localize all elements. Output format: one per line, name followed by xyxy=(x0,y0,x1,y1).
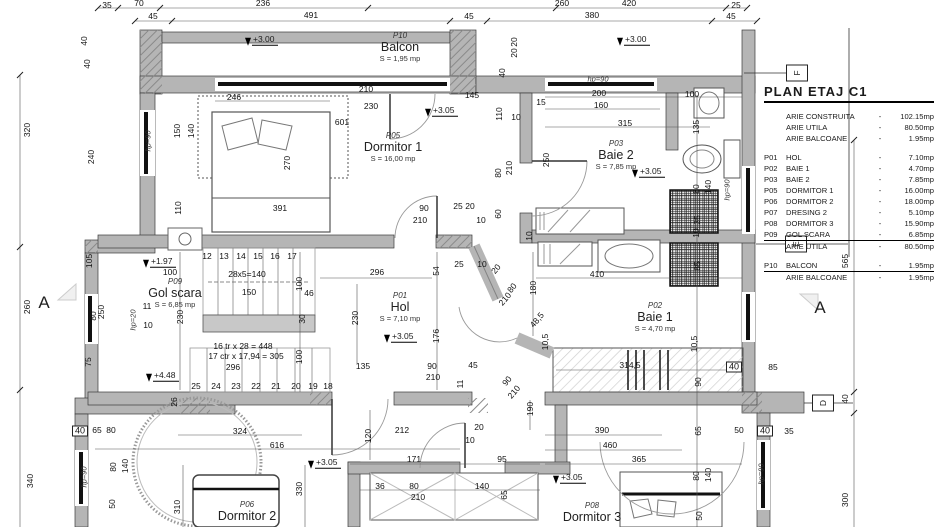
dim-label: 160 xyxy=(594,101,608,110)
legend-cell: BAIE 1 xyxy=(786,163,874,174)
legend-panel: PLAN ETAJ C1 ARIE CONSTRUITA-102.15mpARI… xyxy=(764,84,934,283)
floor-plan-canvas: 3570236260420254549145380453202603404040… xyxy=(0,0,938,527)
dim-label: 35 xyxy=(784,427,793,436)
dim-label: 30 xyxy=(298,314,307,323)
level-marker: +3.00 xyxy=(617,35,650,46)
dim-label: 25 xyxy=(191,382,200,391)
dim-label: 145 xyxy=(465,91,479,100)
dim-label: 35 xyxy=(693,215,702,224)
dim-label: 16 tr x 28 = 448 xyxy=(213,342,272,351)
dim-label: 65 xyxy=(500,490,509,499)
dim-label: 100 xyxy=(295,277,304,291)
room-name: Baie 1 xyxy=(635,310,676,324)
dim-label: 230 xyxy=(364,102,378,111)
dim-label: 210 xyxy=(426,373,440,382)
level-marker: +1.97 xyxy=(143,257,176,268)
dim-label: 314,5 xyxy=(619,361,640,370)
dim-label: hp=90 xyxy=(587,75,608,83)
legend-cell: - xyxy=(874,152,886,163)
room-code: P03 xyxy=(596,139,637,148)
dim-label: 601 xyxy=(335,118,349,127)
dim-label: 21 xyxy=(271,382,280,391)
dim-label: 18 xyxy=(323,382,332,391)
level-marker: +4.48 xyxy=(146,371,179,382)
legend-cell: P05 xyxy=(764,185,786,196)
dim-label: 11 xyxy=(456,380,465,389)
dim-label: 17 xyxy=(287,252,296,261)
dim-label: 16 xyxy=(270,252,279,261)
dim-label: 50 xyxy=(734,426,743,435)
legend-cell: - xyxy=(874,133,886,144)
legend-row: P02BAIE 1-4.70mp xyxy=(764,163,934,174)
dim-label: 410 xyxy=(590,270,604,279)
dim-label: 120 xyxy=(364,429,373,443)
dim-label: 20 xyxy=(465,202,474,211)
legend-cell: 5.10mp xyxy=(886,207,934,218)
dim-label: 20 xyxy=(510,48,519,57)
dim-label: 100 xyxy=(295,350,304,364)
level-marker: +3.00 xyxy=(245,35,278,46)
legend-cell: - xyxy=(874,196,886,207)
dim-label: 330 xyxy=(295,482,304,496)
legend-row: P05DORMITOR 1-16.00mp xyxy=(764,185,934,196)
dim-label: 491 xyxy=(304,11,318,20)
room-label-baie-2: P03Baie 2S = 7,85 mp xyxy=(596,139,637,171)
room-area: S = 16,00 mp xyxy=(364,154,422,163)
legend-cell: - xyxy=(874,229,886,240)
room-code: P09 xyxy=(148,277,202,286)
legend-cell: 80.50mp xyxy=(886,241,934,252)
legend-cell: BALCON xyxy=(786,260,874,271)
room-name: Hol xyxy=(380,300,421,314)
legend-cell: P01 xyxy=(764,152,786,163)
legend-cell: 7.85mp xyxy=(886,174,934,185)
dim-label: 390 xyxy=(595,426,609,435)
dim-label: 80 xyxy=(692,184,701,193)
dim-label: 25 xyxy=(453,202,462,211)
legend-cell: 1.95mp xyxy=(886,260,934,271)
legend-cell: P02 xyxy=(764,163,786,174)
legend-row: ARIE BALCOANE-1.95mp xyxy=(764,271,934,283)
dim-label: 20 xyxy=(291,382,300,391)
dim-label: 230 xyxy=(176,310,185,324)
dim-label: 210 xyxy=(359,85,373,94)
dim-label: 300 xyxy=(841,493,850,507)
dim-label: 140 xyxy=(121,459,130,473)
dim-label: 135 xyxy=(356,362,370,371)
level-triangle-icon xyxy=(425,108,431,116)
dim-label: 171 xyxy=(407,455,421,464)
dim-label: 210 xyxy=(413,216,427,225)
dim-label: 45 xyxy=(148,12,157,21)
dim-label: 240 xyxy=(87,150,96,164)
legend-cell: 16.00mp xyxy=(886,185,934,196)
dim-label: 80 xyxy=(494,168,503,177)
legend-row: P06DORMITOR 2-18.00mp xyxy=(764,196,934,207)
dim-label: 296 xyxy=(370,268,384,277)
room-code: P01 xyxy=(380,291,421,300)
level-triangle-icon xyxy=(308,460,314,468)
dim-label: 46 xyxy=(304,289,313,298)
dim-label: 90 xyxy=(427,362,436,371)
dim-label: hp=90 xyxy=(144,130,152,151)
dim-label: 391 xyxy=(273,204,287,213)
legend-row: P08DORMITOR 3-15.90mp xyxy=(764,218,934,229)
room-label-dormitor-2: P06Dormitor 2 xyxy=(218,500,276,524)
legend-cell: P08 xyxy=(764,218,786,229)
dim-label: hp=90 xyxy=(723,179,731,200)
legend-cell: GOL SCARA xyxy=(786,229,874,240)
dim-label: hp=90 xyxy=(80,466,88,487)
dim-label: 40 xyxy=(841,394,850,403)
legend-cell: - xyxy=(874,272,886,283)
legend-cell: 80.50mp xyxy=(886,122,934,133)
level-triangle-icon xyxy=(146,373,152,381)
room-name: Balcon xyxy=(380,40,421,54)
room-name: Dormitor 1 xyxy=(364,140,422,154)
legend-cell: ARIE UTILA xyxy=(786,241,874,252)
dim-label: 200 xyxy=(592,89,606,98)
section-marker-a: A xyxy=(38,293,49,313)
legend-cell: - xyxy=(874,122,886,133)
dim-label: 75 xyxy=(84,357,93,366)
dim-label: 140 xyxy=(704,180,713,194)
dim-label: 45 xyxy=(468,361,477,370)
legend-cell: DORMITOR 1 xyxy=(786,185,874,196)
dim-label: 110 xyxy=(495,107,504,121)
room-label-dormitor-1: P05Dormitor 1S = 16,00 mp xyxy=(364,131,422,163)
legend-cell: - xyxy=(874,174,886,185)
legend-cell: HOL xyxy=(786,152,874,163)
level-triangle-icon xyxy=(617,37,623,45)
level-marker: +3.05 xyxy=(384,332,417,343)
legend-rows: ARIE CONSTRUITA-102.15mpARIE UTILA-80.50… xyxy=(764,111,934,283)
dim-label: 54 xyxy=(432,266,441,275)
dim-label: 320 xyxy=(23,123,32,137)
room-area: S = 4,70 mp xyxy=(635,324,676,333)
dim-label: 24 xyxy=(211,382,220,391)
legend-cell: 15.90mp xyxy=(886,218,934,229)
room-label-baie-1: P02Baie 1S = 4,70 mp xyxy=(635,301,676,333)
dim-label: 14 xyxy=(236,252,245,261)
dim-label: 28x5=140 xyxy=(228,270,266,279)
legend-cell: - xyxy=(874,111,886,122)
dim-label: 10,5 xyxy=(690,336,699,353)
legend-cell: P07 xyxy=(764,207,786,218)
dim-label: 40 xyxy=(757,426,773,437)
legend-cell: ARIE CONSTRUITA xyxy=(786,111,874,122)
level-marker: +3.05 xyxy=(308,458,341,469)
legend-row: ARIE UTILA-80.50mp xyxy=(764,122,934,133)
legend-cell: - xyxy=(874,185,886,196)
dim-label: 22 xyxy=(251,382,260,391)
legend-cell: 102.15mp xyxy=(886,111,934,122)
room-area: S = 1,95 mp xyxy=(380,54,421,63)
dim-label: 380 xyxy=(585,11,599,20)
legend-cell: - xyxy=(874,207,886,218)
dim-label: 85 xyxy=(768,363,777,372)
room-name: Dormitor 2 xyxy=(218,509,276,523)
dim-label: 296 xyxy=(226,363,240,372)
legend-cell: 6.85mp xyxy=(886,229,934,240)
dim-label: 12 xyxy=(202,252,211,261)
dim-label: 20 xyxy=(474,423,483,432)
room-label-dormitor-3: P08Dormitor 3 xyxy=(563,501,621,525)
room-area: S = 6,85 mp xyxy=(148,300,202,309)
dim-label: 40 xyxy=(72,426,88,437)
legend-cell: - xyxy=(874,260,886,271)
legend-row: P07DRESING 2-5.10mp xyxy=(764,207,934,218)
dim-label: 250 xyxy=(542,153,551,167)
legend-cell: ARIE BALCOANE xyxy=(786,272,874,283)
legend-cell: 4.70mp xyxy=(886,163,934,174)
room-name: Dormitor 3 xyxy=(563,510,621,524)
level-triangle-icon xyxy=(245,37,251,45)
dim-label: 246 xyxy=(227,93,241,102)
dim-label: 100 xyxy=(685,90,699,99)
dim-label: 10 xyxy=(465,436,474,445)
dim-label: 95 xyxy=(497,455,506,464)
dim-label: 45 xyxy=(464,12,473,21)
room-name: Gol scara xyxy=(148,286,202,300)
dim-label: 212 xyxy=(395,426,409,435)
dim-label: 23 xyxy=(231,382,240,391)
dim-label: 110 xyxy=(174,201,183,215)
dim-label: 150 xyxy=(173,124,182,138)
legend-cell: BAIE 2 xyxy=(786,174,874,185)
room-label-gol-scara: P09Gol scaraS = 6,85 mp xyxy=(148,277,202,309)
dim-label: 365 xyxy=(632,455,646,464)
legend-row: P03BAIE 2-7.85mp xyxy=(764,174,934,185)
level-marker: +3.05 xyxy=(425,106,458,117)
legend-row: P01HOL-7.10mp xyxy=(764,152,934,163)
legend-title: PLAN ETAJ C1 xyxy=(764,84,934,103)
dim-label: 65 xyxy=(92,426,101,435)
dim-label: 270 xyxy=(283,156,292,170)
dim-label: 15 xyxy=(253,252,262,261)
dim-label: 50 xyxy=(695,511,704,520)
dim-label: 35 xyxy=(102,1,111,10)
room-name: Baie 2 xyxy=(596,148,637,162)
legend-cell: P10 xyxy=(764,260,786,271)
dim-label: 17 ctr x 17,94 = 305 xyxy=(208,352,283,361)
dim-label: 230 xyxy=(351,311,360,325)
dim-label: 190 xyxy=(526,402,535,416)
dim-label: 10 xyxy=(511,113,520,122)
room-label-hol: P01HolS = 7,10 mp xyxy=(380,291,421,323)
room-code: P02 xyxy=(635,301,676,310)
dim-label: 105 xyxy=(85,254,94,268)
dim-label: 20 xyxy=(490,263,503,276)
level-triangle-icon xyxy=(553,475,559,483)
dim-label: 260 xyxy=(555,0,569,7)
room-code: P06 xyxy=(218,500,276,509)
legend-row: ARIE BALCOANE-1.95mp xyxy=(764,133,934,144)
dim-label: 40 xyxy=(83,59,92,68)
legend-cell: 1.95mp xyxy=(886,133,934,144)
section-marker-f: F xyxy=(786,65,808,82)
room-area: S = 7,10 mp xyxy=(380,314,421,323)
dim-label: 310 xyxy=(173,500,182,514)
dim-label: 36 xyxy=(375,482,384,491)
legend-row: ARIE UTILA-80.50mp xyxy=(764,240,934,252)
dim-label: 340 xyxy=(26,474,35,488)
dim-label: 20 xyxy=(510,37,519,46)
dim-label: 616 xyxy=(270,441,284,450)
dim-label: 40 xyxy=(726,362,742,373)
dim-label: 80 xyxy=(106,426,115,435)
section-marker-d: D xyxy=(812,395,834,412)
legend-cell: P06 xyxy=(764,196,786,207)
dim-label: 236 xyxy=(256,0,270,7)
level-marker: +3.05 xyxy=(553,473,586,484)
dim-label: 460 xyxy=(603,441,617,450)
legend-cell: 18.00mp xyxy=(886,196,934,207)
legend-row: P09GOL SCARA-6.85mp xyxy=(764,229,934,240)
dim-label: 10 xyxy=(143,321,152,330)
dim-label: 80 xyxy=(409,482,418,491)
dim-label: 140 xyxy=(704,468,713,482)
dim-label: 176 xyxy=(432,329,441,343)
legend-cell: DORMITOR 3 xyxy=(786,218,874,229)
dim-label: 324 xyxy=(233,427,247,436)
legend-cell: P03 xyxy=(764,174,786,185)
dim-label: hp=90 xyxy=(757,463,765,484)
dim-label: 80 xyxy=(692,471,701,480)
legend-cell: ARIE BALCOANE xyxy=(786,133,874,144)
legend-cell: DORMITOR 2 xyxy=(786,196,874,207)
dim-label: 85 xyxy=(693,261,702,270)
dim-label: 80 xyxy=(109,462,118,471)
dim-label: 45 xyxy=(726,12,735,21)
dim-label: 65 xyxy=(694,426,703,435)
section-marker-a: A xyxy=(814,298,825,318)
dim-label: 10 xyxy=(525,231,534,240)
dim-label: 140 xyxy=(187,124,196,138)
dim-label: hp=20 xyxy=(129,309,137,330)
legend-cell: P09 xyxy=(764,229,786,240)
room-code: P05 xyxy=(364,131,422,140)
dim-label: 40 xyxy=(498,68,507,77)
dim-label: 10 xyxy=(477,260,486,269)
dim-label: 13 xyxy=(219,252,228,261)
dim-label: 180 xyxy=(529,281,538,295)
room-area: S = 7,85 mp xyxy=(596,162,637,171)
room-label-balcon: P10BalconS = 1,95 mp xyxy=(380,31,421,63)
dim-label: 315 xyxy=(618,119,632,128)
dim-label: 90 xyxy=(694,377,703,386)
dim-label: 135 xyxy=(692,120,701,134)
dim-label: 10 xyxy=(692,228,701,237)
legend-cell: DRESING 2 xyxy=(786,207,874,218)
legend-row: P10BALCON-1.95mp xyxy=(764,260,934,271)
room-code: P10 xyxy=(380,31,421,40)
legend-cell: - xyxy=(874,218,886,229)
dim-label: 19 xyxy=(308,382,317,391)
dim-label: 10,5 xyxy=(541,334,550,351)
dim-label: 40 xyxy=(80,36,89,45)
dim-label: 420 xyxy=(622,0,636,7)
dim-label: 100 xyxy=(163,268,177,277)
dim-label: 70 xyxy=(134,0,143,7)
legend-cell: 1.95mp xyxy=(886,272,934,283)
legend-cell: - xyxy=(874,163,886,174)
dim-label: 50 xyxy=(108,499,117,508)
room-code: P08 xyxy=(563,501,621,510)
dim-label: 260 xyxy=(23,300,32,314)
level-triangle-icon xyxy=(143,259,149,267)
dim-label: 210 xyxy=(505,161,514,175)
legend-cell: - xyxy=(874,241,886,252)
dim-label: 140 xyxy=(475,482,489,491)
dim-label: 210 xyxy=(411,493,425,502)
dim-label: 26 xyxy=(170,397,179,406)
dim-label: 15 xyxy=(536,98,545,107)
dim-label: 90 xyxy=(419,204,428,213)
level-marker: +3.05 xyxy=(632,167,665,178)
dim-label: 48,5 xyxy=(528,311,545,329)
dim-label: 10 xyxy=(476,216,485,225)
dim-label: 25 xyxy=(454,260,463,269)
dim-label: 25 xyxy=(731,1,740,10)
level-triangle-icon xyxy=(384,334,390,342)
dim-label: 150 xyxy=(242,288,256,297)
legend-row: ARIE CONSTRUITA-102.15mp xyxy=(764,111,934,122)
dim-label: 60 xyxy=(494,209,503,218)
dim-label: 250 xyxy=(97,305,106,319)
legend-cell: 7.10mp xyxy=(886,152,934,163)
legend-cell: ARIE UTILA xyxy=(786,122,874,133)
